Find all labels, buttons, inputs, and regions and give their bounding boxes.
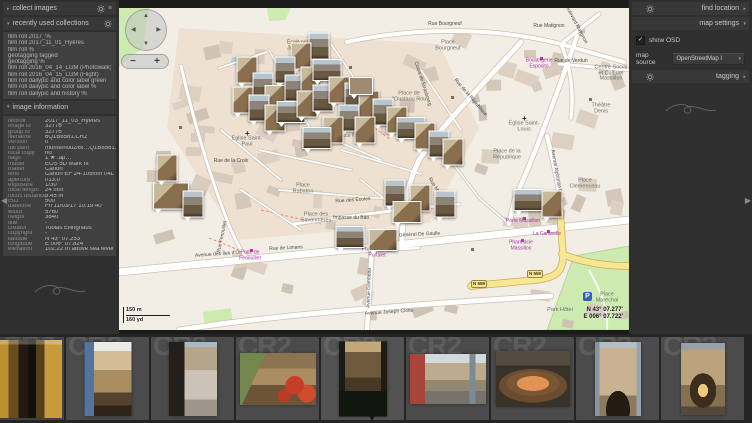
map-photo-marker[interactable] — [336, 226, 365, 248]
filmstrip-cell[interactable]: CR2 — [151, 337, 234, 420]
pan-right-icon[interactable]: ▶ — [156, 26, 161, 33]
filmstrip-cell[interactable]: CR2 — [661, 337, 744, 420]
scale-metric: 150 m — [126, 307, 170, 314]
map-photo-marker[interactable] — [514, 189, 543, 211]
scale-imperial: 160 yd — [126, 317, 170, 324]
collection-item[interactable]: film roll dailypic and history % — [8, 91, 111, 97]
gear-icon[interactable] — [646, 5, 654, 13]
collection-item[interactable]: film roll dailypic and color label % — [8, 84, 111, 90]
filmstrip-photo[interactable] — [410, 354, 486, 404]
recent-collections-title: recently used collections — [13, 20, 89, 27]
show-osd-checkbox[interactable]: ✓ — [636, 36, 645, 45]
map-settings-title: map settings — [699, 20, 739, 27]
filmstrip-photo[interactable] — [0, 340, 62, 418]
map-photo-marker[interactable] — [183, 191, 204, 218]
module-header-icons: ≡ — [97, 5, 112, 13]
map-photo-marker[interactable] — [443, 139, 464, 166]
chevron-down-icon: ▾ — [738, 56, 741, 62]
map-photo-marker[interactable] — [542, 191, 563, 218]
module-header-map-settings[interactable]: map settings ▾ — [632, 17, 749, 30]
gear-icon[interactable] — [97, 5, 105, 13]
collapse-right-panel-arrow[interactable]: ▶ — [745, 196, 751, 205]
scale-bar — [126, 315, 170, 316]
darktable-map-view: ▸ collect images ≡ ▾ recently used colle… — [0, 0, 752, 423]
map-settings-body: ✓ show OSD map source OpenStreetMap I ▾ — [629, 30, 752, 68]
map-source-value: OpenStreetMap I — [676, 56, 722, 62]
filmstrip-cell[interactable]: CR2 — [321, 337, 404, 420]
pan-down-icon[interactable]: ▼ — [143, 41, 149, 47]
map-top-border — [119, 0, 629, 8]
map-pan-control[interactable]: ▲ ▼ ◀ ▶ — [125, 9, 167, 51]
filmstrip-photo[interactable] — [240, 353, 316, 405]
presets-icon[interactable]: ≡ — [108, 5, 112, 12]
map-view[interactable]: Place MassillonPlace de la RépubliquePla… — [119, 8, 629, 330]
filmstrip-photo[interactable] — [84, 342, 131, 416]
map-source-dropdown[interactable]: OpenStreetMap I ▾ — [672, 53, 745, 65]
right-panel: find location ▸ map settings ▾ ✓ show OS… — [629, 0, 752, 334]
expanded-triangle-icon: ▾ — [743, 21, 746, 27]
image-information-title: image information — [13, 104, 69, 111]
cursor-longitude: E 006° 07.722' — [583, 314, 623, 321]
info-label: elevation — [8, 247, 45, 252]
map-source-row: map source OpenStreetMap I ▾ — [636, 52, 745, 66]
zoom-out-button[interactable]: − — [130, 56, 136, 67]
filmstrip-current-indicator: ▼ — [368, 414, 376, 423]
flourish-ornament — [33, 282, 87, 298]
pan-left-icon[interactable]: ◀ — [131, 26, 136, 33]
filmstrip-photo[interactable] — [169, 342, 217, 416]
cursor-coordinates: N 43° 07.277' E 006° 07.722' — [583, 307, 623, 321]
expanded-triangle-icon: ▾ — [7, 21, 10, 27]
info-value: Tobias Ellinghaus — [45, 226, 92, 231]
map-photo-marker[interactable] — [349, 77, 373, 95]
module-header-tagging[interactable]: tagging ▸ — [632, 70, 749, 83]
collect-images-title: collect images — [13, 5, 57, 12]
filmstrip-cell[interactable]: CR2 — [236, 337, 319, 420]
map-photo-marker[interactable] — [157, 155, 178, 182]
show-osd-row: ✓ show OSD — [636, 36, 745, 45]
map-source-label: map source — [636, 52, 668, 66]
filmstrip: CR2CR2CR2CR2CR2CR2CR2CR2CR2▼ — [0, 334, 752, 423]
gear-icon[interactable] — [104, 20, 112, 28]
info-value: 3840 — [45, 215, 58, 220]
filmstrip-cell[interactable]: CR2 — [0, 337, 64, 420]
filmstrip-cell[interactable]: CR2 — [406, 337, 489, 420]
filmstrip-photo[interactable] — [339, 341, 387, 416]
collapsed-triangle-icon: ▸ — [7, 6, 10, 12]
map-photo-marker[interactable] — [393, 201, 422, 223]
recent-collections-list: film roll 2017_%film roll 2017_11_01_Hyè… — [3, 32, 116, 99]
module-header-image-information[interactable]: ▾ image information — [3, 101, 116, 114]
map-photo-marker[interactable] — [309, 33, 330, 60]
map-photo-marker[interactable] — [369, 229, 398, 251]
map-photo-markers-layer — [119, 8, 629, 330]
image-information-table: filmroll 2017_11_03_Hyères image id 3277… — [3, 116, 116, 256]
expanded-triangle-icon: ▾ — [7, 104, 10, 110]
find-location-title: find location — [702, 5, 739, 12]
filmstrip-photo[interactable] — [595, 342, 641, 416]
gear-icon[interactable] — [646, 73, 654, 81]
collection-item[interactable]: film roll 2016_04_14_LGM (Photowalk) — [8, 65, 111, 71]
info-value: 6Q1B8581.CR2 — [45, 135, 87, 140]
pan-up-icon[interactable]: ▲ — [143, 13, 149, 19]
collapsed-triangle-icon: ▸ — [743, 74, 746, 80]
info-value: /home/houz/Bi…Q1B8581.CR2 — [45, 146, 116, 151]
zoom-in-button[interactable]: + — [154, 56, 160, 67]
collapse-left-panel-arrow[interactable]: ◀ — [1, 196, 7, 205]
info-row: elevation 102.22 m above sea level — [8, 247, 116, 252]
module-header-recent-collections[interactable]: ▾ recently used collections — [3, 17, 116, 30]
filmstrip-photo[interactable] — [496, 351, 570, 407]
map-photo-marker[interactable] — [355, 117, 376, 144]
cursor-latitude: N 43° 07.277' — [583, 307, 623, 314]
module-header-icons — [104, 20, 112, 28]
filmstrip-cell[interactable]: CR2 — [491, 337, 574, 420]
map-photo-marker[interactable] — [435, 191, 456, 218]
flourish-ornament — [664, 101, 718, 117]
module-header-find-location[interactable]: find location ▸ — [632, 2, 749, 15]
map-zoom-control[interactable]: − + — [121, 54, 169, 69]
tagging-title: tagging — [716, 73, 739, 80]
filmstrip-cell[interactable]: CR2 — [576, 337, 659, 420]
filmstrip-photo[interactable] — [681, 343, 725, 415]
left-panel: ▸ collect images ≡ ▾ recently used colle… — [0, 0, 119, 334]
map-photo-marker[interactable] — [303, 127, 332, 149]
module-header-collect-images[interactable]: ▸ collect images ≡ — [3, 2, 116, 15]
map-scale-indicator: 150 m 160 yd — [123, 307, 170, 323]
info-value: 102.22 m above sea level — [45, 247, 113, 252]
show-osd-label: show OSD — [649, 37, 680, 44]
filmstrip-cell[interactable]: CR2 — [66, 337, 149, 420]
collapsed-triangle-icon: ▸ — [743, 6, 746, 12]
